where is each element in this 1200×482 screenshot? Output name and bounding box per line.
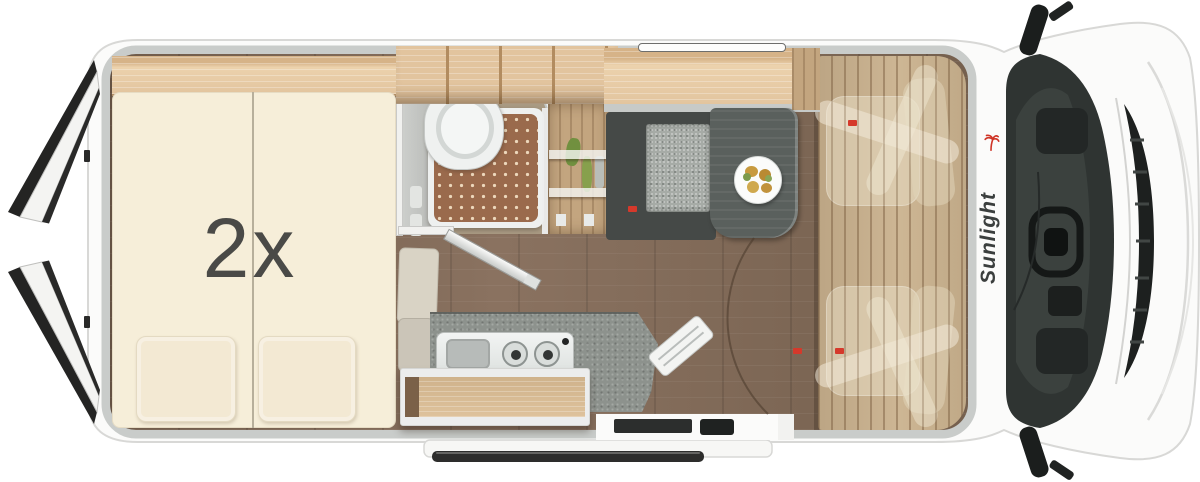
palm-tree-icon (982, 134, 1000, 152)
plant-item-2 (582, 156, 592, 192)
pillow-right (258, 336, 356, 422)
food-garnish-1 (743, 173, 751, 181)
kitchen-sink-basin (446, 339, 490, 369)
dashboard-top (1036, 108, 1088, 154)
entry-step (424, 440, 772, 462)
burner-center-1 (511, 350, 521, 360)
side-window-strip (638, 43, 786, 52)
seat-base-pedestal (700, 419, 734, 435)
bed-count-label: 2x (165, 198, 335, 298)
food-item-4 (761, 183, 772, 193)
stove-burner-1 (502, 341, 528, 367)
toilet-bowl (436, 97, 494, 159)
dinette-bench-cushion (646, 124, 710, 212)
bed-side-cushion-2 (398, 318, 434, 372)
rear-door-upper (8, 60, 100, 224)
motorhome-floorplan: 2x (0, 0, 1200, 482)
bottle-item (595, 156, 604, 188)
kitchen-open-shelf (400, 368, 590, 426)
interior-entry-step (614, 419, 692, 433)
wardrobe-shelf-2 (549, 188, 609, 197)
food-item-3 (747, 181, 759, 193)
pillow-left (136, 336, 236, 422)
dashboard-bottom (1036, 328, 1088, 374)
stove-burner-2 (534, 341, 560, 367)
overhead-cabinet-end (792, 48, 820, 110)
bathroom-overhead-cabinets (396, 46, 618, 104)
rear-door-lower (8, 261, 100, 425)
pillar-tag (793, 348, 802, 354)
dinette-overhead-cabinet (604, 48, 820, 106)
steering-hub (1044, 228, 1068, 256)
wardrobe-foot-2 (584, 214, 594, 226)
brand-logo-text: Sunlight (974, 152, 1004, 324)
food-garnish-2 (765, 175, 772, 182)
bed-head-shelf (112, 56, 396, 96)
cab-wood-grain-overlay (818, 56, 966, 430)
shelf-interior (405, 377, 585, 417)
center-console (1048, 286, 1082, 316)
bench-tag (628, 206, 637, 212)
stove-knob (562, 338, 569, 345)
burner-center-2 (543, 350, 553, 360)
wardrobe-foot-1 (556, 214, 566, 226)
wardrobe-shelf-1 (549, 150, 609, 159)
b-pillar (778, 414, 794, 440)
plate-of-food (734, 156, 782, 204)
shower-glass-wall (542, 108, 548, 234)
cabinet-handle-1 (410, 186, 422, 208)
